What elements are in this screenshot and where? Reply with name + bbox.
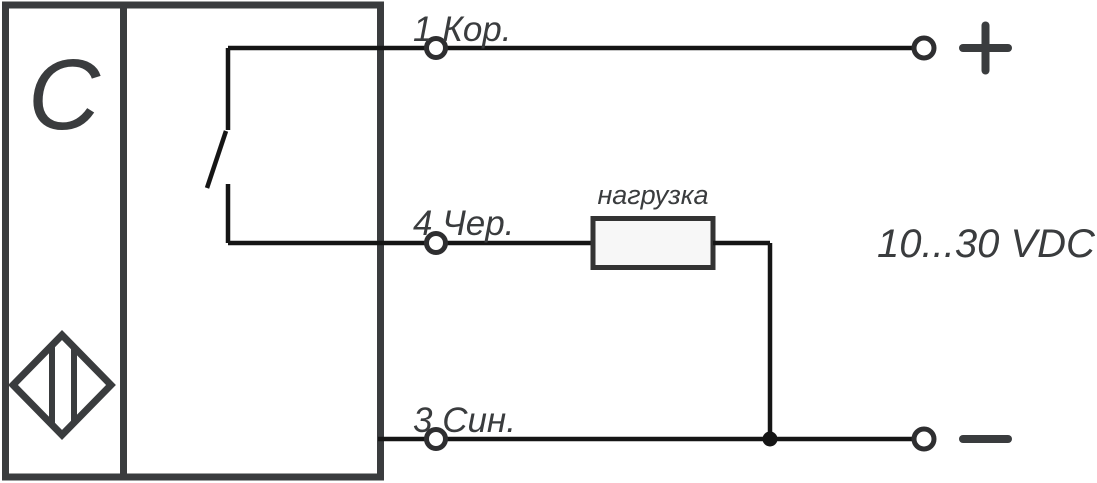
load-label: нагрузка bbox=[597, 180, 708, 210]
sensor-wiring-diagram: C bbox=[0, 0, 1097, 483]
wiring-diagram-canvas: C bbox=[0, 0, 1097, 483]
plus-symbol bbox=[963, 26, 1008, 71]
sensor-type-label: C bbox=[28, 39, 101, 151]
wire-blue-label: 3 Син. bbox=[413, 401, 516, 440]
wire-black-label: 4 Чер. bbox=[413, 204, 514, 243]
diamond-outline bbox=[13, 335, 111, 435]
normally-open-switch-icon bbox=[207, 48, 228, 243]
diamond-proximity-sensor-icon bbox=[13, 335, 111, 435]
junction-dot bbox=[763, 432, 778, 447]
supply-voltage-label: 10...30 VDC bbox=[877, 222, 1096, 266]
wire-brown-label: 1 Кор. bbox=[413, 10, 511, 49]
supply-minus-terminal bbox=[914, 429, 934, 449]
supply-plus-terminal bbox=[914, 38, 934, 58]
switch-blade bbox=[207, 131, 226, 188]
load-resistor bbox=[593, 219, 713, 268]
